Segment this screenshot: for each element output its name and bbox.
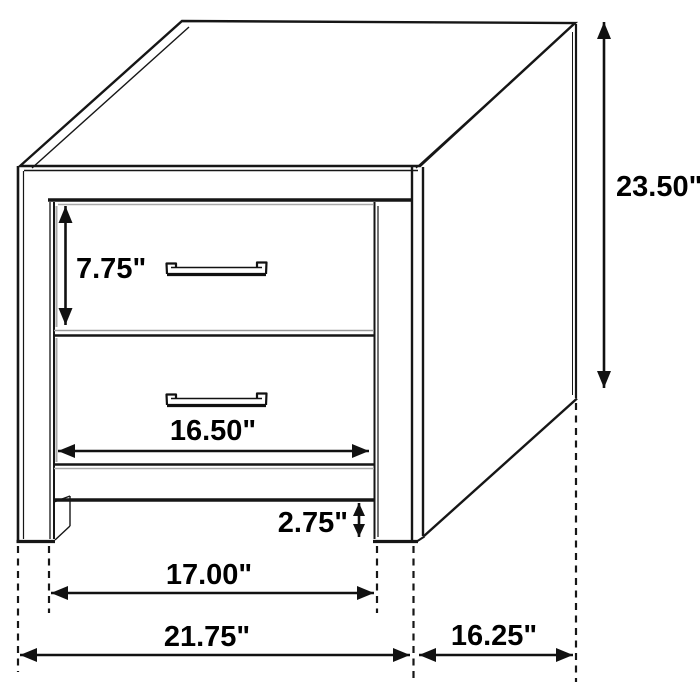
- overall-height-label: 23.50": [616, 171, 700, 203]
- dimension-diagram: 7.75" 23.50" 16.50" 2.75" 17.00" 21.75" …: [0, 0, 700, 700]
- overall-width-label: 21.75": [164, 621, 250, 653]
- top-drawer-height-label: 7.75": [76, 253, 146, 285]
- dimension-floor-clearance: 2.75": [278, 503, 359, 539]
- nightstand-dimension-drawing: 7.75" 23.50" 16.50" 2.75" 17.00" 21.75" …: [0, 0, 700, 700]
- drawer-width-label: 16.50": [170, 415, 256, 447]
- inner-leg-width-label: 17.00": [166, 559, 252, 591]
- side-depth-label: 16.25": [451, 620, 537, 652]
- floor-clearance-label: 2.75": [278, 507, 348, 539]
